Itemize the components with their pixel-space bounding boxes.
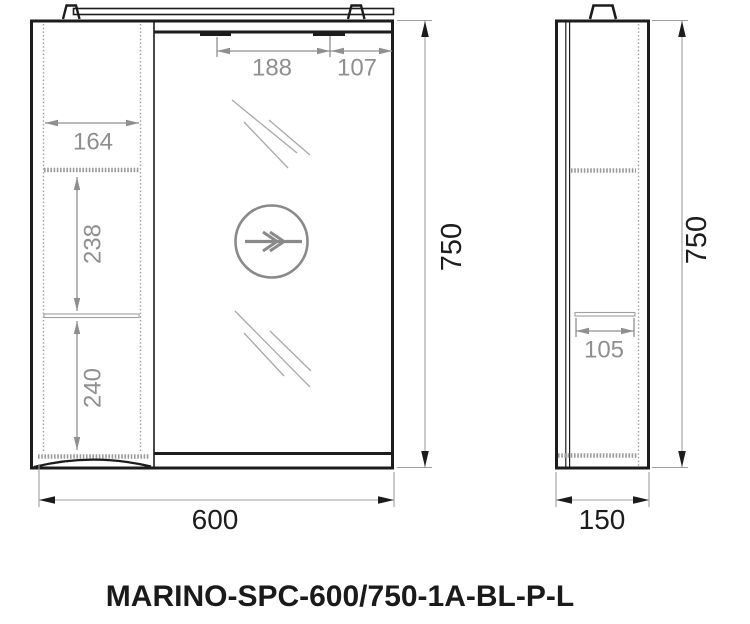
- side-shelf-line-middle: [575, 313, 635, 317]
- shelf-line-middle: [44, 314, 139, 318]
- dimension-side-height: 750: [652, 21, 713, 468]
- dimension-lamp-spacing: 188 107: [217, 36, 392, 81]
- dim-label-240: 240: [79, 368, 106, 408]
- lamp-mark-left: [200, 31, 231, 36]
- curved-bottom-profile: [34, 460, 151, 467]
- dimension-shelf-gap-lower: 240: [74, 321, 107, 450]
- mirror-shine-marks-top: [232, 100, 310, 168]
- front-view: 188 107 164 238 240: [32, 6, 469, 535]
- side-view: 105 750 150: [556, 6, 713, 535]
- cabinet-technical-drawing: 188 107 164 238 240: [0, 0, 750, 624]
- dimension-front-width: 600: [39, 464, 394, 535]
- dim-label-238: 238: [79, 224, 106, 264]
- dim-label-150: 150: [579, 504, 626, 535]
- side-cabinet-outline: [557, 21, 649, 468]
- dimension-shelf-depth: 105: [576, 318, 634, 363]
- side-mounting-bracket-icon: [590, 6, 616, 20]
- mirror-shine-marks-bottom: [235, 311, 311, 387]
- dimension-front-height: 750: [397, 21, 468, 468]
- dim-label-side-750: 750: [681, 216, 713, 264]
- dimension-side-depth: 150: [556, 472, 649, 535]
- dim-label-164: 164: [73, 128, 113, 155]
- dim-label-front-750: 750: [436, 223, 468, 271]
- door-direction-icon: [236, 206, 308, 278]
- lamp-mark-right: [313, 31, 345, 36]
- dimension-shelf-width: 164: [45, 120, 139, 156]
- mounting-bracket-left-icon: [63, 6, 80, 20]
- dim-label-107: 107: [337, 54, 377, 81]
- light-bar: [74, 9, 394, 15]
- model-name-title: MARINO-SPC-600/750-1A-BL-P-L: [30, 580, 650, 614]
- dim-label-105: 105: [584, 336, 624, 363]
- mounting-bracket-right-icon: [348, 6, 365, 20]
- dimension-shelf-gap-upper: 238: [74, 177, 107, 311]
- dim-label-188: 188: [252, 54, 292, 81]
- dim-label-600: 600: [192, 504, 239, 535]
